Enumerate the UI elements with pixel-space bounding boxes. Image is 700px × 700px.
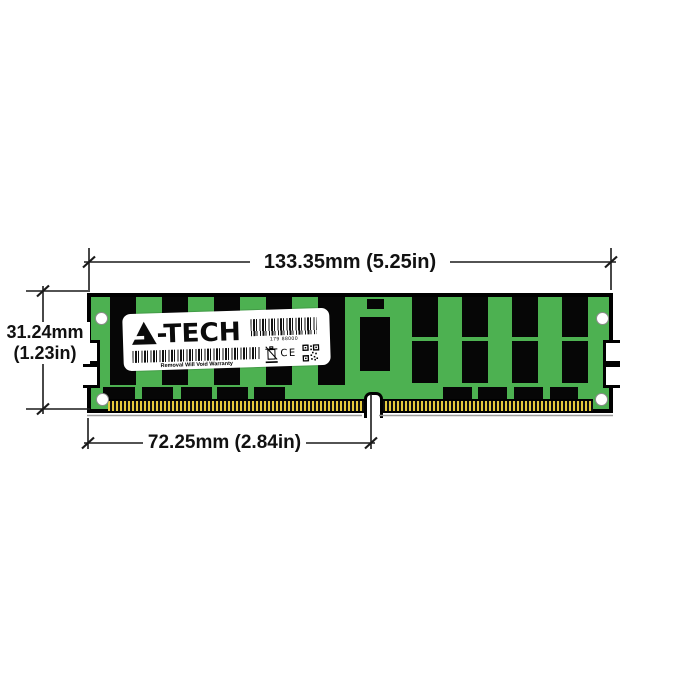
pin-to-notch-dimension: 72.25mm (2.84in) (143, 432, 306, 454)
height-dimension-mm: 31.24mm (0, 322, 90, 343)
memory-chip (412, 297, 438, 337)
small-component (217, 387, 248, 399)
serial-barcode (250, 317, 317, 336)
memory-chip (512, 341, 538, 383)
qr-code (302, 344, 320, 362)
small-component (142, 387, 173, 399)
latch-notch (603, 364, 620, 388)
small-component (443, 387, 472, 399)
gold-pins-left (108, 399, 365, 411)
memory-chip (562, 297, 588, 337)
serial-number: 179 88000 (251, 335, 317, 343)
height-dimension: 31.24mm (1.23in) (0, 322, 90, 364)
height-dimension-in: (1.23in) (0, 343, 90, 364)
logo-triangle-a (131, 321, 156, 345)
mounting-hole (596, 312, 609, 325)
mounting-hole (96, 393, 109, 406)
small-component (478, 387, 507, 399)
small-component (181, 387, 212, 399)
small-component (514, 387, 543, 399)
key-notch (364, 392, 383, 418)
mounting-hole (595, 393, 608, 406)
memory-chip (462, 341, 488, 383)
memory-chip (512, 297, 538, 337)
product-dimension-diagram: -TECH 179 88000 Removal Will Void Warran… (0, 0, 700, 700)
memory-chip (562, 341, 588, 383)
gold-pins-right (377, 399, 593, 411)
weee-icon (264, 345, 279, 363)
latch-notch (603, 340, 620, 364)
a-tech-logo: -TECH (130, 317, 243, 346)
logo-text: -TECH (156, 317, 241, 346)
latch-notch (83, 364, 100, 388)
mounting-hole (95, 312, 108, 325)
overall-width-dimension: 133.35mm (5.25in) (250, 251, 450, 273)
product-label: -TECH 179 88000 Removal Will Void Warran… (122, 308, 331, 371)
register-chip (360, 317, 390, 371)
memory-chip (462, 297, 488, 337)
memory-chip (412, 341, 438, 383)
ce-mark: CE (280, 348, 297, 360)
spd-chip (367, 299, 384, 309)
small-component (550, 387, 578, 399)
small-component (254, 387, 285, 399)
